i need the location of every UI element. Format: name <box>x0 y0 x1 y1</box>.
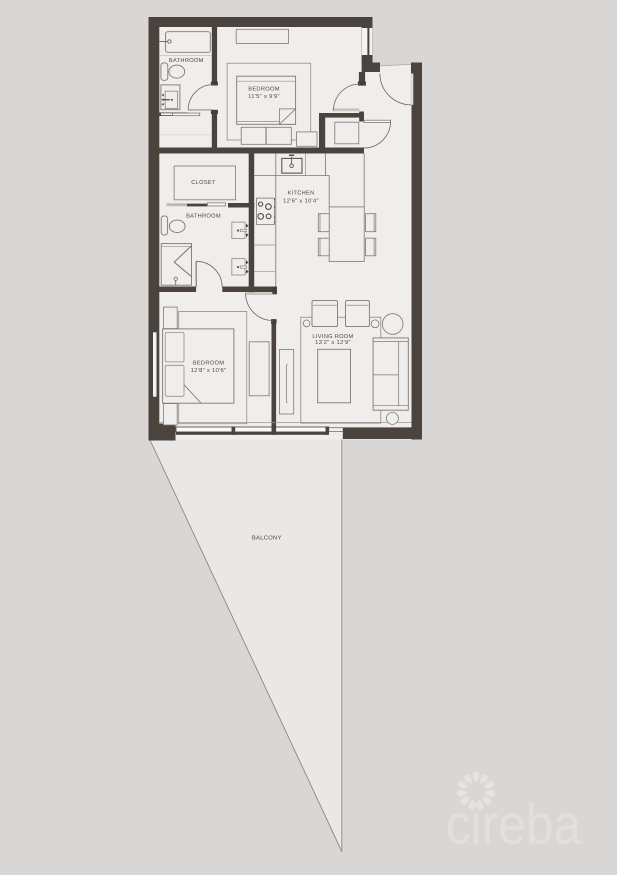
svg-text:LIVING ROOM: LIVING ROOM <box>312 334 353 340</box>
svg-text:BATHROOM: BATHROOM <box>186 213 221 219</box>
svg-text:CLOSET: CLOSET <box>191 180 216 186</box>
svg-text:BEDROOM: BEDROOM <box>193 361 225 367</box>
svg-text:cireba: cireba <box>446 793 582 856</box>
svg-text:KITCHEN: KITCHEN <box>287 191 314 197</box>
svg-text:13'2" x 12'9": 13'2" x 12'9" <box>315 339 351 346</box>
svg-text:12'6" x 10'4": 12'6" x 10'4" <box>283 198 319 205</box>
svg-text:11'5" x 9'9": 11'5" x 9'9" <box>248 93 280 100</box>
svg-text:BALCONY: BALCONY <box>252 534 282 541</box>
svg-text:BEDROOM: BEDROOM <box>248 86 280 92</box>
svg-text:12'8" x 10'6": 12'8" x 10'6" <box>191 367 227 374</box>
svg-text:BATHROOM: BATHROOM <box>169 58 204 64</box>
